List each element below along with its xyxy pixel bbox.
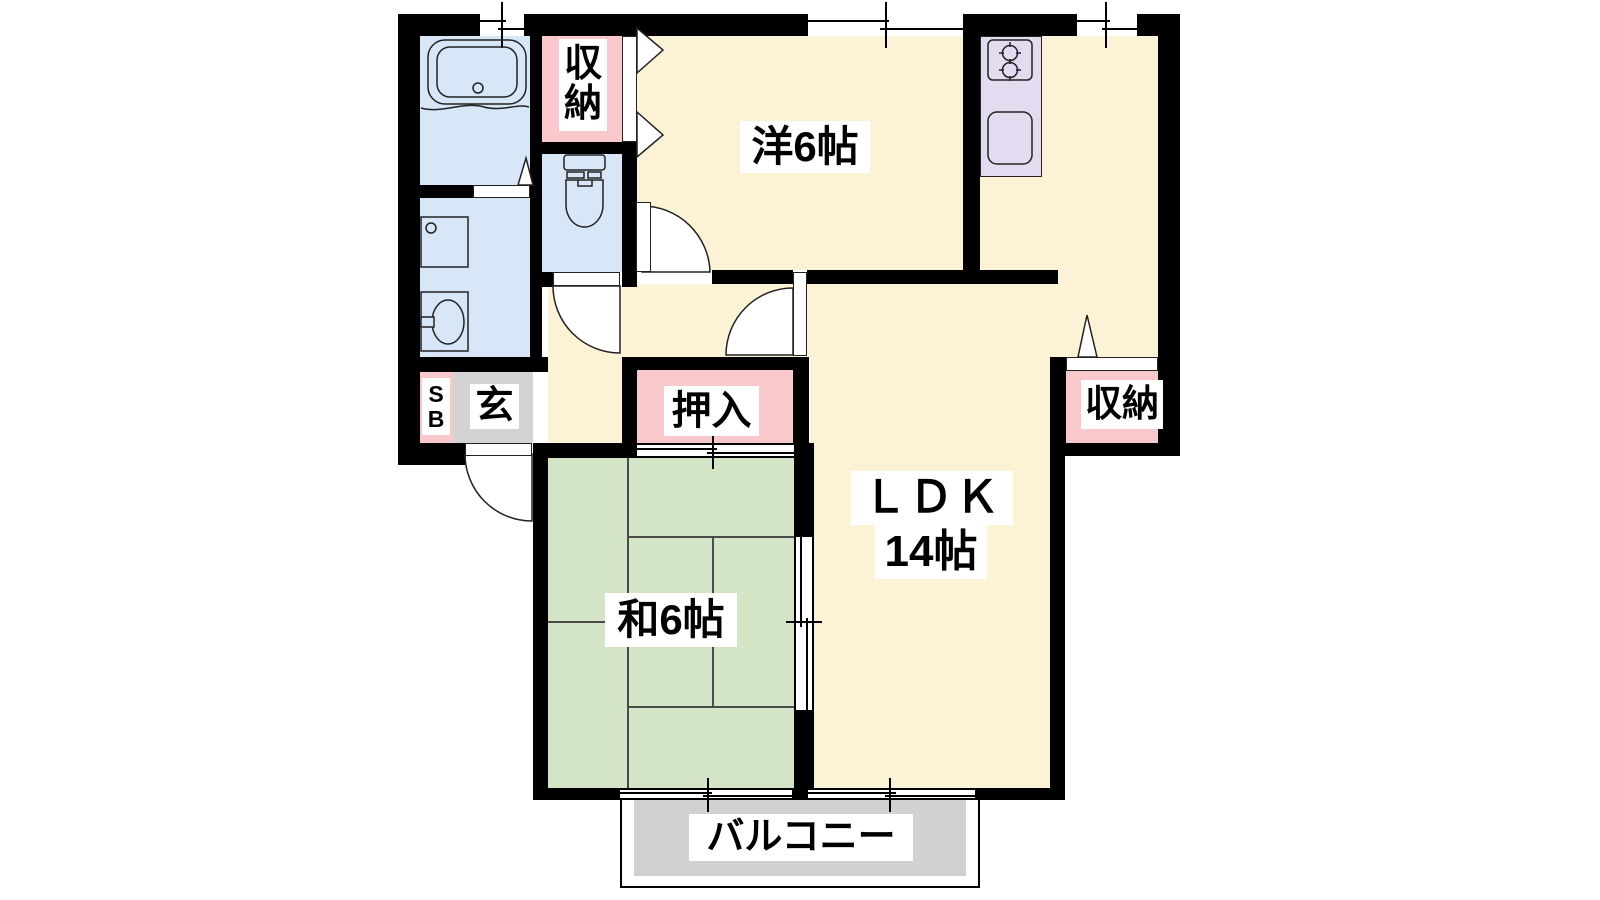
door-arc-toilet (553, 286, 620, 353)
label-ldk-size: 14帖 (875, 525, 987, 579)
label-entrance-text: 玄 (475, 387, 513, 427)
washbasin (421, 292, 468, 351)
label-ldk-size-text: 14帖 (885, 529, 978, 575)
label-shoebox: S B (422, 378, 450, 435)
label-balcony-text: バルコニー (706, 818, 895, 858)
label-western-room: 洋6帖 (740, 121, 870, 173)
door-arc-hallway-ldk (726, 288, 793, 355)
label-oshiire-text: 押入 (672, 390, 752, 432)
door-arc-entrance (465, 454, 532, 521)
label-closet-top: 収 納 (559, 39, 607, 131)
label-entrance: 玄 (470, 384, 519, 429)
label-oshiire: 押入 (664, 386, 759, 436)
bathtub (421, 40, 529, 110)
label-closet-right: 収納 (1081, 380, 1163, 429)
toilet (564, 155, 605, 227)
door-leaf-toilet (553, 272, 620, 286)
label-shoebox-char2: B (428, 407, 445, 431)
label-closet-top-char2: 納 (564, 85, 602, 125)
label-ldk-text: ＬＤＫ (863, 475, 1001, 521)
gas-stove (988, 40, 1032, 81)
label-shoebox-char1: S (428, 382, 443, 406)
door-leaf-hallway-ldk (793, 272, 807, 356)
label-western-room-text: 洋6帖 (751, 125, 858, 169)
kitchen-sink (988, 112, 1032, 164)
door-arc-western-room (642, 206, 710, 272)
floor-plan: 洋6帖 ＬＤＫ 14帖 和6帖 押入 収 納 収納 玄 S B バルコニー (0, 0, 1600, 900)
label-closet-top-char1: 収 (564, 45, 602, 85)
label-japanese-room-text: 和6帖 (617, 598, 724, 642)
label-japanese-room: 和6帖 (605, 593, 737, 647)
door-leaf-entrance (465, 443, 532, 456)
folding-door-triangle-closet-top (637, 28, 663, 157)
door-leaf-western-room (636, 202, 651, 272)
label-closet-right-text: 収納 (1085, 385, 1159, 424)
washing-machine (421, 217, 468, 267)
door-triangle-bathroom (518, 158, 533, 185)
label-balcony: バルコニー (689, 814, 913, 861)
door-triangle-closet-right (1078, 315, 1097, 357)
label-ldk: ＬＤＫ (851, 471, 1013, 525)
